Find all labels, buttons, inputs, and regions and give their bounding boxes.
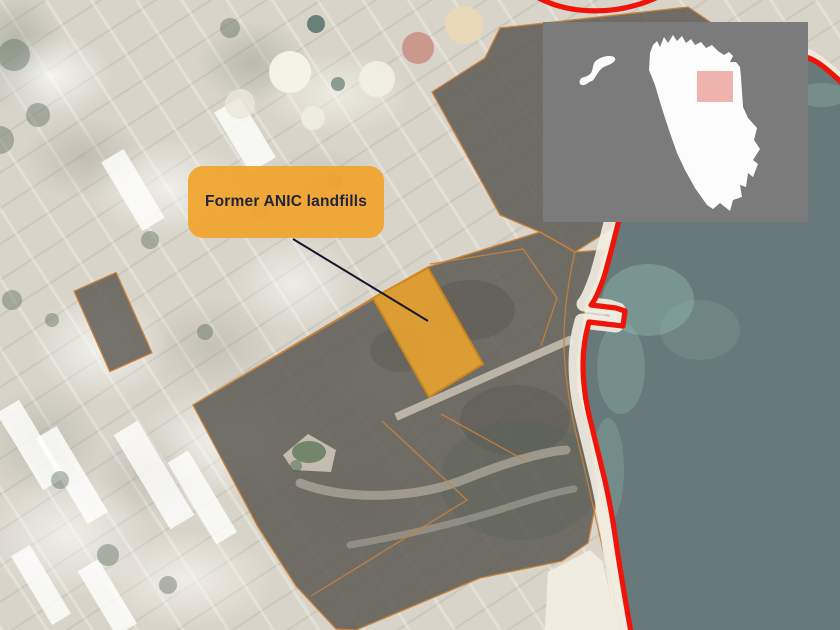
tree-patch bbox=[220, 18, 240, 38]
map-label-text: Former ANIC landfills bbox=[205, 193, 367, 211]
tree-patch bbox=[97, 544, 119, 566]
satellite-map: Former ANIC landfills bbox=[0, 0, 840, 630]
tree-patch bbox=[51, 471, 69, 489]
vegetation-patch bbox=[290, 460, 302, 472]
storage-tank bbox=[269, 51, 311, 93]
tree-patch bbox=[197, 324, 213, 340]
tree-patch bbox=[26, 103, 50, 127]
storage-tank bbox=[445, 6, 483, 44]
vegetation-patch bbox=[292, 441, 326, 463]
tree-patch bbox=[141, 231, 159, 249]
inset-locator-map bbox=[543, 22, 808, 222]
building-block bbox=[78, 559, 137, 630]
storage-tank bbox=[301, 106, 325, 130]
map-label: Former ANIC landfills bbox=[188, 166, 384, 238]
inset-area-marker bbox=[697, 71, 733, 102]
tree-patch bbox=[45, 313, 59, 327]
tree-patch bbox=[159, 576, 177, 594]
storage-tank bbox=[402, 32, 434, 64]
tree-patch bbox=[331, 77, 345, 91]
coastline-line-top bbox=[535, 0, 662, 11]
tree-patch bbox=[307, 15, 325, 33]
tree-patch bbox=[0, 126, 14, 154]
building-block bbox=[11, 545, 71, 625]
storage-tank bbox=[359, 61, 395, 97]
storage-tank bbox=[225, 89, 255, 119]
tree-patch bbox=[2, 290, 22, 310]
shallow-water-patch bbox=[660, 300, 740, 360]
tree-patch bbox=[0, 39, 30, 71]
shallow-water-patch bbox=[597, 322, 645, 414]
building-block bbox=[101, 149, 164, 231]
dark-parcel-small-west bbox=[74, 272, 152, 371]
